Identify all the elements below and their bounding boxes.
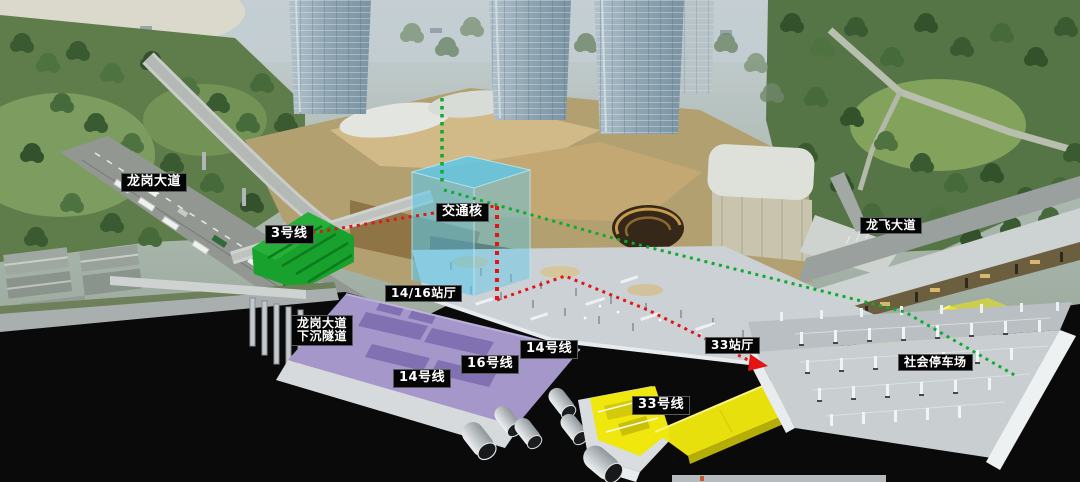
- label-line14-right: 14号线: [520, 340, 578, 359]
- label-line3: 3号线: [265, 225, 314, 244]
- spiral-atrium: [612, 205, 684, 251]
- tower-3: [594, 0, 684, 134]
- label-line14-left: 14号线: [393, 369, 451, 388]
- label-transport-core: 交通核: [436, 203, 489, 222]
- towers: [289, 0, 714, 134]
- label-line33: 33号线: [632, 396, 690, 415]
- tower-2: [489, 0, 571, 120]
- label-longfei-avenue: 龙飞大道: [860, 217, 922, 234]
- label-line16: 16号线: [461, 355, 519, 374]
- transport-core-highlight: [412, 156, 530, 296]
- label-hall-14-16: 14/16站厅: [385, 285, 462, 302]
- tower-1: [289, 0, 371, 114]
- label-sunken-tunnel-line2: 下沉隧道: [297, 330, 347, 343]
- rendering-stage: 龙岗大道 3号线 交通核 14/16站厅 龙岗大道 下沉隧道 14号线 16号线…: [0, 0, 1080, 482]
- label-longgang-avenue: 龙岗大道: [121, 173, 187, 192]
- label-hall-33: 33站厅: [705, 337, 760, 354]
- bottom-structure-sliver: [672, 475, 886, 482]
- label-public-parking: 社会停车场: [898, 354, 973, 371]
- scene-rendering: [0, 0, 1080, 482]
- label-sunken-tunnel: 龙岗大道 下沉隧道: [291, 315, 353, 346]
